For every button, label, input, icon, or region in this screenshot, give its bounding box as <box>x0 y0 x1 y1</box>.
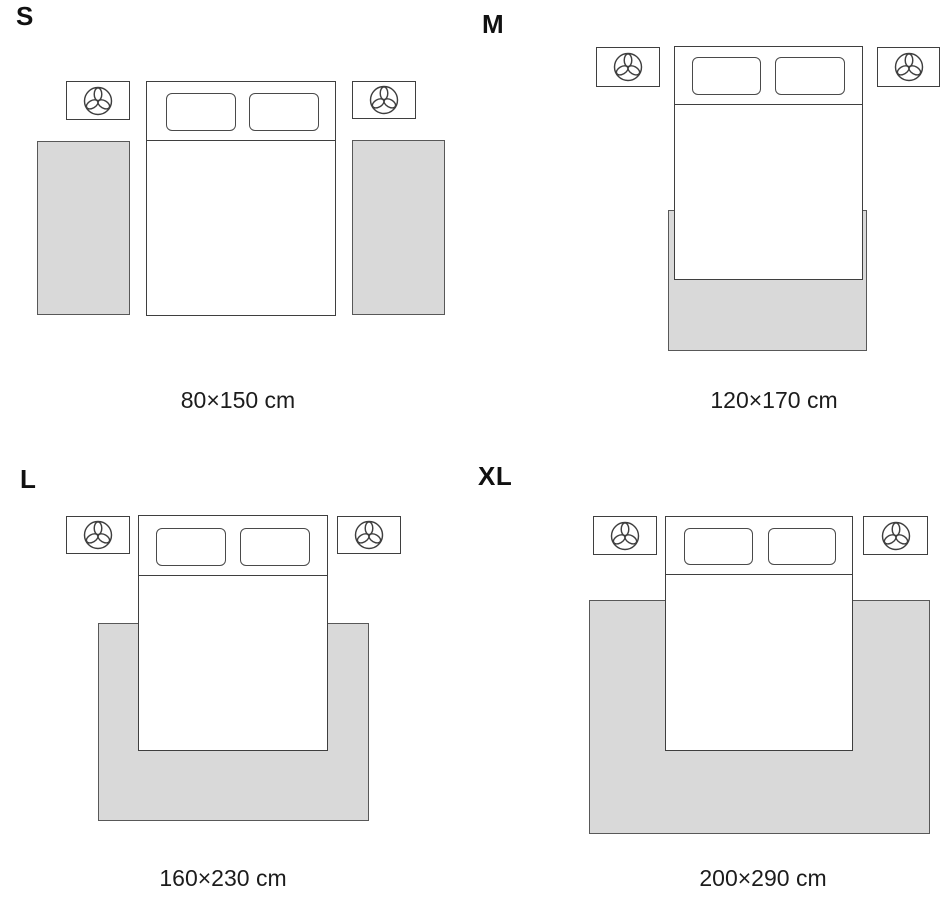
pillow <box>768 528 836 565</box>
bed <box>138 515 328 751</box>
pillow <box>156 528 226 566</box>
bed <box>146 81 336 316</box>
bed-headboard <box>675 47 862 105</box>
pillow <box>240 528 310 566</box>
plant-icon <box>351 517 387 553</box>
bed <box>674 46 863 280</box>
nightstand <box>863 516 928 555</box>
pillow <box>166 93 236 131</box>
nightstand <box>66 81 130 120</box>
pillow <box>692 57 761 95</box>
nightstand <box>352 81 416 119</box>
nightstand <box>337 516 401 554</box>
plant-icon <box>607 518 643 554</box>
plant-icon <box>891 49 927 85</box>
plant-icon <box>878 518 914 554</box>
bed-headboard <box>147 82 335 141</box>
bed-headboard <box>666 517 852 575</box>
nightstand <box>66 516 130 554</box>
plant-icon <box>366 82 402 118</box>
nightstand <box>877 47 940 87</box>
rug-size-guide: S <box>0 0 950 900</box>
nightstand <box>593 516 657 555</box>
rug <box>37 141 130 315</box>
size-letter: XL <box>478 463 512 489</box>
pillow <box>249 93 319 131</box>
plant-icon <box>610 49 646 85</box>
pillow <box>684 528 753 565</box>
pillow <box>775 57 845 95</box>
rug <box>352 140 445 315</box>
rug-dimensions-label: 200×290 cm <box>633 865 893 892</box>
plant-icon <box>80 517 116 553</box>
plant-icon <box>80 83 116 119</box>
bed <box>665 516 853 751</box>
bed-headboard <box>139 516 327 576</box>
nightstand <box>596 47 660 87</box>
